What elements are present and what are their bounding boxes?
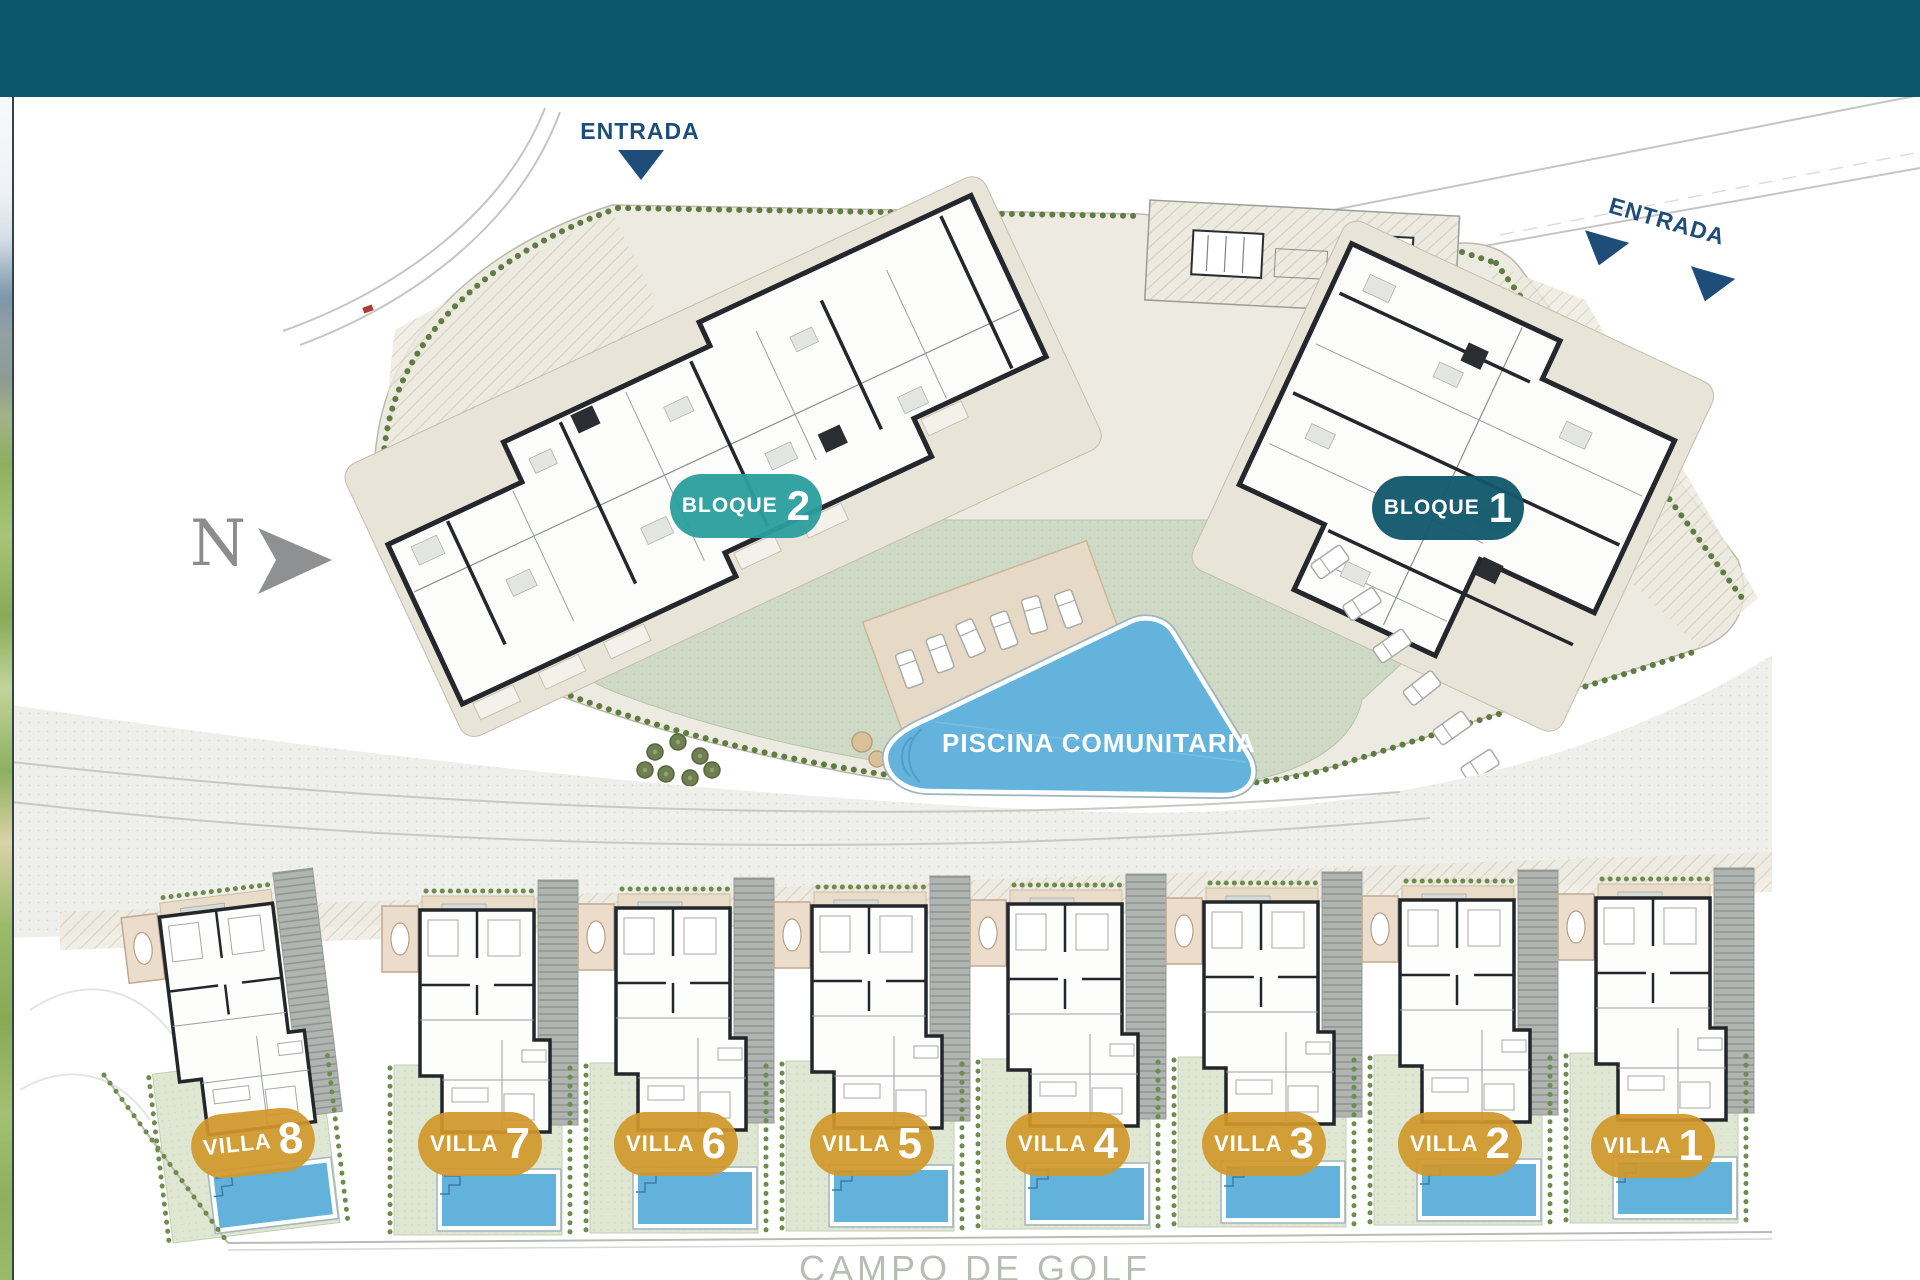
- golf-photo-strip: [0, 97, 14, 1280]
- villa-4-number: 4: [1094, 1122, 1118, 1166]
- villa-2-badge: VILLA 2: [1398, 1112, 1522, 1176]
- bloque-2-number: 2: [787, 485, 810, 527]
- villa-2-label: VILLA: [1410, 1131, 1479, 1157]
- compass-arrow-icon: [258, 528, 332, 594]
- bloque-2-label: BLOQUE: [682, 494, 778, 518]
- bloque-1-number: 1: [1489, 487, 1512, 529]
- entrance-label-main: ENTRADA: [575, 118, 705, 145]
- villa-1-label: VILLA: [1603, 1133, 1672, 1159]
- villa-1-number: 1: [1679, 1124, 1703, 1168]
- site-plan-page: ENTRADA ENTRADA N BLOQUE 2 BLOQUE 1 PISC…: [0, 0, 1920, 1280]
- golf-course-label: CAMPO DE GOLF: [700, 1248, 1250, 1280]
- villa-6-badge: VILLA 6: [614, 1112, 738, 1176]
- villa-3-number: 3: [1290, 1122, 1314, 1166]
- entrance-arrow-icon: [618, 150, 664, 180]
- villa-7-number: 7: [506, 1122, 530, 1166]
- villa-plot-7: [382, 880, 578, 1235]
- villa-5-number: 5: [898, 1122, 922, 1166]
- villa-plot-6: [578, 878, 774, 1233]
- villa-7-label: VILLA: [430, 1131, 499, 1157]
- villa-5-badge: VILLA 5: [810, 1112, 934, 1176]
- villa-4-badge: VILLA 4: [1006, 1112, 1130, 1176]
- bloque-1-label: BLOQUE: [1384, 496, 1480, 520]
- villa-plot-5: [774, 876, 970, 1231]
- bloque-1-badge: BLOQUE 1: [1372, 476, 1524, 540]
- bloque-2-badge: BLOQUE 2: [670, 474, 822, 538]
- villa-6-number: 6: [702, 1122, 726, 1166]
- villa-2-number: 2: [1486, 1122, 1510, 1166]
- header-bar: [0, 0, 1920, 97]
- villa-3-label: VILLA: [1214, 1131, 1283, 1157]
- pool-label: PISCINA COMUNITARIA: [942, 728, 1222, 759]
- villa-1-badge: VILLA 1: [1591, 1114, 1715, 1178]
- villa-4-label: VILLA: [1018, 1131, 1087, 1157]
- villa-6-label: VILLA: [626, 1131, 695, 1157]
- villa-5-label: VILLA: [822, 1131, 891, 1157]
- villa-8-number: 8: [276, 1116, 305, 1162]
- north-indicator: N: [190, 512, 246, 576]
- villa-3-badge: VILLA 3: [1202, 1112, 1326, 1176]
- villa-7-badge: VILLA 7: [418, 1112, 542, 1176]
- site-plan-drawing: [0, 0, 1920, 1280]
- villa-8-label: VILLA: [202, 1128, 273, 1161]
